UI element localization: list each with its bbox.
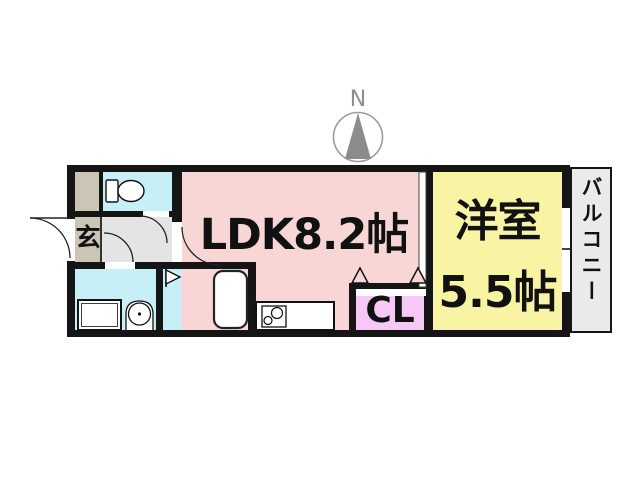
- ldk-label: LDK8.2帖: [182, 209, 426, 261]
- wall-hall-ldk: [172, 165, 182, 269]
- floorplan-canvas: バルコニー N LDK8.2帖 洋室 5.5帖 CL 玄 洗濯機置き場: [0, 0, 640, 480]
- western-room-label: 洋室 5.5帖: [433, 186, 562, 328]
- room-storage: [75, 172, 99, 211]
- entrance-door-arc: [30, 218, 70, 258]
- wall-washroom-bath: [156, 269, 163, 337]
- wall-bath-ldk: [248, 262, 256, 337]
- room-hallway: [100, 217, 172, 262]
- western-room-label-line2: 5.5帖: [433, 257, 562, 328]
- compass-ring: [334, 113, 383, 162]
- compass-north-arrow-icon: [345, 113, 371, 159]
- wall-storage-toilet: [99, 172, 103, 211]
- wall-bottom: [67, 330, 570, 337]
- room-washroom: [75, 269, 156, 330]
- closet-wall-left: [349, 283, 356, 337]
- western-room-label-line1: 洋室: [433, 186, 562, 257]
- closet-label: CL: [356, 290, 424, 332]
- genkan-label: 玄: [74, 224, 102, 252]
- wall-right-unit: [562, 165, 570, 337]
- compass-north-label: N: [344, 88, 372, 112]
- laundry-space-label: 洗濯機置き場: [80, 310, 119, 318]
- wall-top: [67, 165, 570, 172]
- room-balcony: バルコニー: [570, 167, 612, 333]
- balcony-label: バルコニー: [576, 176, 606, 331]
- room-toilet: [103, 172, 172, 211]
- wall-ldk-western: [426, 165, 433, 337]
- wall-under-toilet: [75, 211, 172, 217]
- wall-mid-horizontal: [67, 262, 256, 269]
